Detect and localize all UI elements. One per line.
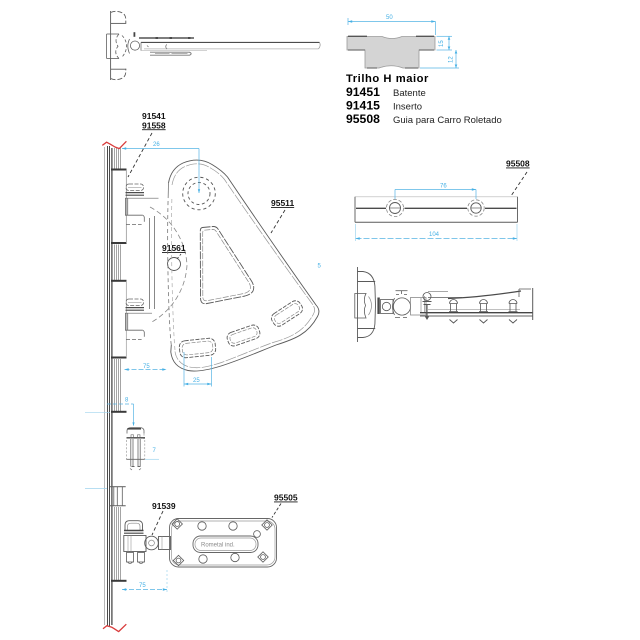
- svg-text:15: 15: [439, 40, 445, 47]
- svg-text:75: 75: [139, 583, 146, 589]
- svg-text:Inserto: Inserto: [393, 102, 422, 113]
- svg-text:91451: 91451: [346, 85, 380, 99]
- svg-text:91558: 91558: [142, 120, 166, 130]
- svg-text:Guia para Carro Roletado: Guia para Carro Roletado: [393, 115, 502, 126]
- svg-text:75: 75: [143, 364, 150, 370]
- svg-text:95511: 95511: [271, 198, 294, 208]
- svg-text:95508: 95508: [506, 159, 530, 169]
- svg-text:25: 25: [193, 378, 200, 384]
- svg-text:91415: 91415: [346, 99, 380, 113]
- svg-text:91539: 91539: [152, 501, 176, 511]
- svg-text:26: 26: [153, 142, 160, 148]
- svg-text:12: 12: [449, 56, 455, 63]
- svg-text:Batente: Batente: [393, 88, 426, 99]
- svg-text:95508: 95508: [346, 112, 380, 126]
- svg-text:76: 76: [440, 184, 447, 190]
- svg-text:50: 50: [386, 15, 393, 21]
- svg-text:Trilho H maior: Trilho H maior: [346, 73, 429, 85]
- svg-text:95505: 95505: [274, 493, 298, 503]
- svg-text:Rometal ind.: Rometal ind.: [201, 543, 235, 549]
- svg-text:91561: 91561: [162, 243, 186, 253]
- svg-text:104: 104: [429, 232, 440, 238]
